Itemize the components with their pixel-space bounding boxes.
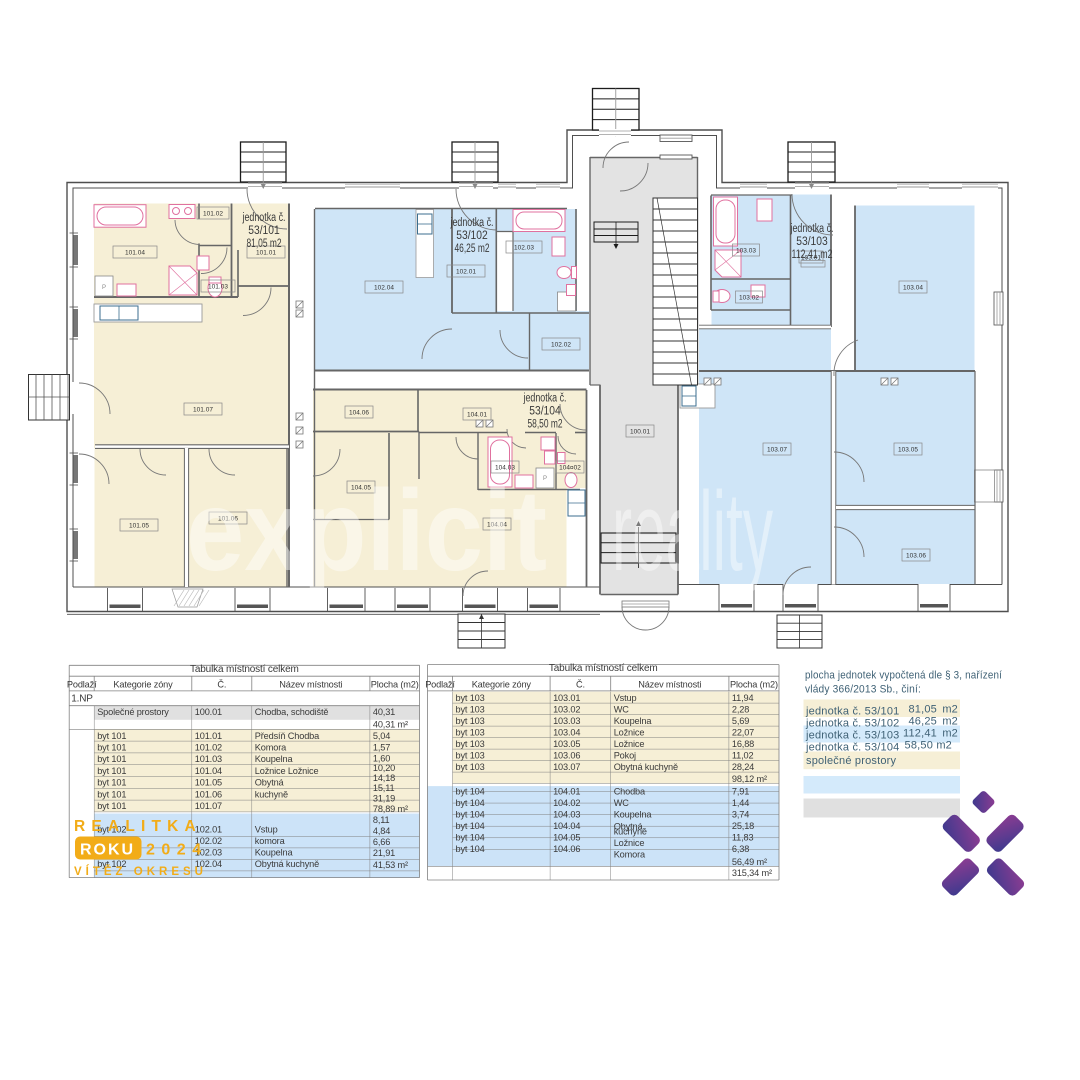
svg-text:58,50 m2: 58,50 m2 [905, 740, 952, 752]
svg-text:byt 101: byt 101 [97, 731, 126, 741]
svg-text:byt 103: byt 103 [456, 704, 485, 714]
svg-text:Pokoj: Pokoj [614, 750, 636, 760]
svg-text:byt 101: byt 101 [97, 789, 126, 799]
svg-text:Chodba, schodiště: Chodba, schodiště [255, 707, 329, 717]
svg-text:103.01: 103.01 [553, 693, 580, 703]
svg-text:11,02: 11,02 [732, 750, 754, 760]
svg-text:101.07: 101.07 [193, 407, 213, 414]
svg-text:Č.: Č. [576, 680, 585, 690]
svg-text:5,04: 5,04 [373, 731, 390, 741]
svg-text:112,41: 112,41 [903, 728, 937, 740]
svg-text:m2: m2 [942, 704, 958, 716]
svg-text:Obytná kuchyně: Obytná kuchyně [255, 859, 319, 869]
svg-text:101.02: 101.02 [195, 743, 222, 753]
svg-text:25,18: 25,18 [732, 821, 754, 831]
svg-text:104.01: 104.01 [467, 412, 487, 419]
svg-text:Ložnice: Ložnice [614, 739, 645, 749]
svg-text:46,25: 46,25 [908, 716, 937, 728]
svg-text:byt 104: byt 104 [456, 809, 485, 819]
svg-text:Tabulka místností celkem: Tabulka místností celkem [549, 663, 658, 674]
svg-text:22,07: 22,07 [732, 727, 754, 737]
svg-text:m2: m2 [942, 716, 958, 728]
svg-text:vlády 366/2013 Sb., činí:: vlády 366/2013 Sb., činí: [805, 684, 921, 696]
svg-text:103.07: 103.07 [553, 762, 580, 772]
svg-text:1,44: 1,44 [732, 798, 749, 808]
svg-text:Vstup: Vstup [255, 824, 278, 834]
svg-text:Komora: Komora [614, 850, 646, 860]
svg-text:společné prostory: společné prostory [806, 755, 897, 767]
svg-text:78,89 m²: 78,89 m² [373, 804, 408, 814]
svg-text:98,12 m²: 98,12 m² [732, 774, 767, 784]
svg-text:104¤02: 104¤02 [559, 465, 581, 472]
svg-text:315,34 m²: 315,34 m² [732, 868, 772, 878]
svg-text:81,05 m2: 81,05 m2 [247, 238, 282, 250]
svg-text:104.05: 104.05 [553, 833, 580, 843]
svg-text:byt 101: byt 101 [97, 766, 126, 776]
svg-text:14,18: 14,18 [373, 773, 395, 783]
svg-text:kuchyně: kuchyně [255, 789, 288, 799]
svg-text:112,41 m2: 112,41 m2 [792, 249, 833, 261]
svg-text:Chodba: Chodba [614, 787, 646, 797]
svg-text:11,83: 11,83 [732, 833, 754, 843]
svg-text:Tabulka místností celkem: Tabulka místností celkem [190, 664, 299, 675]
svg-text:byt 104: byt 104 [456, 821, 485, 831]
svg-text:102.02: 102.02 [551, 342, 571, 349]
svg-text:WC: WC [614, 798, 630, 808]
svg-text:Obytná: Obytná [255, 778, 285, 788]
svg-text:byt 103: byt 103 [456, 693, 485, 703]
svg-text:40,31 m²: 40,31 m² [373, 720, 408, 730]
svg-text:byt 101: byt 101 [97, 754, 126, 764]
svg-text:Předsíň Chodba: Předsíň Chodba [255, 731, 320, 741]
svg-text:104.03: 104.03 [553, 809, 580, 819]
svg-text:53/101: 53/101 [248, 225, 280, 237]
svg-text:103.03: 103.03 [736, 248, 756, 255]
svg-text:103.02: 103.02 [553, 704, 580, 714]
svg-text:byt 103: byt 103 [456, 750, 485, 760]
svg-text:103.06: 103.06 [906, 553, 926, 560]
svg-text:103.02: 103.02 [739, 295, 759, 302]
svg-text:1.NP: 1.NP [71, 694, 93, 705]
svg-text:1,57: 1,57 [373, 742, 390, 752]
svg-text:Společné prostory: Společné prostory [97, 707, 169, 717]
svg-text:46,25 m2: 46,25 m2 [455, 243, 490, 255]
svg-text:58,50 m2: 58,50 m2 [528, 419, 563, 431]
svg-text:104.04: 104.04 [553, 821, 580, 831]
svg-text:byt 104: byt 104 [456, 798, 485, 808]
svg-text:Koupelna: Koupelna [255, 847, 294, 857]
svg-text:2,28: 2,28 [732, 704, 749, 714]
svg-text:53/102: 53/102 [456, 230, 488, 242]
svg-text:Ložnice: Ložnice [614, 838, 645, 848]
svg-text:reality: reality [612, 469, 773, 594]
svg-text:102.04: 102.04 [374, 285, 394, 292]
svg-text:ROKU: ROKU [80, 842, 135, 859]
svg-text:jednotka č. 53/104: jednotka č. 53/104 [805, 742, 900, 754]
svg-text:Koupelna: Koupelna [255, 754, 294, 764]
svg-text:101.01: 101.01 [256, 250, 276, 257]
svg-text:101.03: 101.03 [208, 284, 228, 291]
svg-text:Podlaží: Podlaží [425, 680, 455, 690]
svg-text:28,24: 28,24 [732, 762, 754, 772]
svg-text:10,20: 10,20 [373, 763, 395, 773]
svg-text:104.06: 104.06 [349, 410, 369, 417]
svg-text:41,53 m²: 41,53 m² [373, 860, 408, 870]
svg-text:101.04: 101.04 [125, 250, 145, 257]
svg-text:8,11: 8,11 [373, 815, 390, 825]
svg-text:11,94: 11,94 [732, 693, 754, 703]
svg-text:jednotka č. 53/101: jednotka č. 53/101 [805, 706, 900, 718]
svg-text:103.04: 103.04 [903, 285, 923, 292]
svg-text:6,38: 6,38 [732, 844, 749, 854]
svg-text:Koupelna: Koupelna [614, 810, 653, 820]
svg-text:7,91: 7,91 [732, 786, 749, 796]
svg-text:103.05: 103.05 [553, 739, 580, 749]
svg-text:101.05: 101.05 [195, 778, 222, 788]
svg-text:jednotka č. 53/103: jednotka č. 53/103 [805, 730, 900, 742]
svg-text:104.01: 104.01 [553, 786, 580, 796]
svg-text:VÍTĚZ OKRESU: VÍTĚZ OKRESU [74, 865, 207, 878]
svg-text:plocha jednotek vypočtená dle: plocha jednotek vypočtená dle § 3, naříz… [805, 670, 1003, 682]
svg-text:byt 103: byt 103 [456, 716, 485, 726]
svg-text:15,11: 15,11 [373, 783, 395, 793]
svg-text:2024: 2024 [146, 842, 208, 859]
svg-text:103.06: 103.06 [553, 750, 580, 760]
svg-text:kuchyně: kuchyně [614, 827, 647, 837]
svg-text:16,88: 16,88 [732, 739, 754, 749]
svg-text:byt 103: byt 103 [456, 727, 485, 737]
svg-text:jednotka č. 53/102: jednotka č. 53/102 [805, 718, 900, 730]
svg-text:m2: m2 [942, 728, 958, 740]
svg-text:Plocha (m2): Plocha (m2) [730, 680, 778, 690]
svg-text:Plocha (m2): Plocha (m2) [371, 680, 419, 690]
svg-text:1,60: 1,60 [373, 753, 390, 763]
svg-text:Kategorie zóny: Kategorie zóny [472, 680, 532, 690]
svg-text:103.04: 103.04 [553, 727, 580, 737]
svg-text:103.05: 103.05 [898, 447, 918, 454]
svg-text:101.04: 101.04 [195, 766, 222, 776]
svg-text:byt 104: byt 104 [456, 786, 485, 796]
svg-text:byt 104: byt 104 [456, 844, 485, 854]
svg-text:101.07: 101.07 [195, 801, 222, 811]
svg-text:56,49 m²: 56,49 m² [732, 857, 767, 867]
svg-text:100.01: 100.01 [630, 429, 650, 436]
svg-text:byt 104: byt 104 [456, 833, 485, 843]
svg-text:40,31: 40,31 [373, 707, 395, 717]
svg-text:31,19: 31,19 [373, 794, 395, 804]
svg-text:100.01: 100.01 [195, 707, 222, 717]
svg-text:byt 103: byt 103 [456, 762, 485, 772]
svg-text:Ložnice: Ložnice [614, 727, 645, 737]
svg-text:101.01: 101.01 [195, 731, 222, 741]
svg-text:Kategorie zóny: Kategorie zóny [113, 680, 173, 690]
svg-text:byt 101: byt 101 [97, 801, 126, 811]
svg-text:jednotka č.: jednotka č. [523, 393, 567, 405]
svg-text:53/103: 53/103 [796, 236, 828, 248]
svg-text:53/104: 53/104 [529, 406, 561, 418]
svg-text:byt 101: byt 101 [97, 743, 126, 753]
svg-text:21,91: 21,91 [373, 848, 395, 858]
svg-text:81,05: 81,05 [908, 704, 937, 716]
svg-text:101.03: 101.03 [195, 754, 222, 764]
svg-text:jednotka č.: jednotka č. [790, 223, 834, 235]
svg-text:103.03: 103.03 [553, 716, 580, 726]
svg-text:5,69: 5,69 [732, 716, 749, 726]
svg-text:byt 101: byt 101 [97, 778, 126, 788]
svg-text:6,66: 6,66 [373, 837, 390, 847]
svg-text:Koupelna: Koupelna [614, 716, 653, 726]
svg-text:4,84: 4,84 [373, 826, 390, 836]
svg-text:103.07: 103.07 [767, 447, 787, 454]
svg-text:Č.: Č. [217, 680, 226, 690]
svg-text:jednotka č.: jednotka č. [242, 212, 286, 224]
svg-text:102.01: 102.01 [456, 269, 476, 276]
svg-text:explicit: explicit [186, 467, 547, 595]
svg-text:jednotka č.: jednotka č. [450, 217, 494, 229]
svg-text:101.05: 101.05 [129, 523, 149, 530]
svg-text:104.06: 104.06 [553, 844, 580, 854]
svg-text:Název místnosti: Název místnosti [638, 680, 701, 690]
svg-text:101.06: 101.06 [195, 789, 222, 799]
svg-text:REALITKA: REALITKA [74, 818, 202, 835]
svg-text:Název místnosti: Název místnosti [279, 680, 342, 690]
svg-text:Podlaží: Podlaží [67, 680, 97, 690]
svg-text:Vstup: Vstup [614, 693, 637, 703]
svg-text:104.02: 104.02 [553, 798, 580, 808]
svg-text:3,74: 3,74 [732, 810, 749, 820]
svg-text:Komora: Komora [255, 743, 287, 753]
svg-text:komora: komora [255, 836, 286, 846]
svg-text:102.03: 102.03 [514, 245, 534, 252]
svg-text:Obytná kuchyně: Obytná kuchyně [614, 762, 678, 772]
svg-text:WC: WC [614, 704, 630, 714]
svg-text:byt 103: byt 103 [456, 739, 485, 749]
svg-text:P: P [102, 285, 106, 291]
svg-text:101.02: 101.02 [203, 211, 223, 218]
svg-text:Ložnice Ložnice: Ložnice Ložnice [255, 766, 319, 776]
